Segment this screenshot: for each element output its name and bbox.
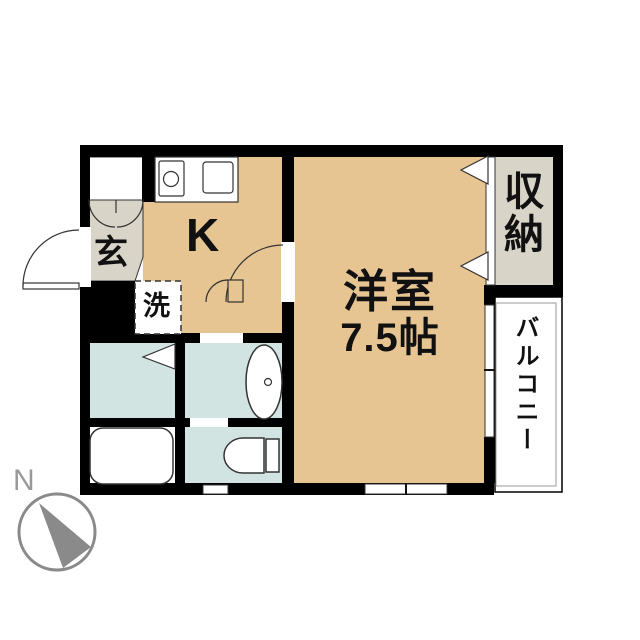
wall-bath-divider-v	[175, 343, 185, 483]
main-room-label: 洋室	[294, 269, 486, 314]
wall-kitchen-room	[282, 157, 294, 493]
wall-room-right-lower	[484, 437, 495, 483]
kitchen-sink-icon	[203, 162, 233, 193]
basin-door-leaf	[228, 280, 243, 302]
closet-label: 収納	[500, 170, 540, 256]
washbasin-drain-icon	[265, 379, 272, 386]
wall-closet-right	[553, 145, 563, 297]
toilet-doorway	[190, 418, 228, 427]
entrance-door-arc	[23, 230, 79, 286]
main-room-size: 7.5帖	[294, 318, 486, 358]
bathtub-icon	[90, 428, 173, 484]
stove-burner-icon	[164, 172, 179, 187]
entrance-door-leaf	[23, 283, 79, 289]
toilet-window	[203, 485, 228, 494]
floorplan: 玄 K 洗 洋室 7.5帖 収納 バルコニー N	[0, 0, 640, 640]
kitchen-label: K	[186, 212, 219, 258]
wall-block	[88, 281, 135, 335]
wall-closet-bottom	[484, 285, 563, 297]
wall-under-kitchen	[88, 333, 294, 343]
compass-north-label: N	[13, 466, 35, 496]
genkan-label: 玄	[94, 236, 128, 270]
entrance-cabinet	[88, 157, 143, 200]
kitchen-room-doorway	[281, 242, 295, 302]
balcony-label: バルコニー	[512, 315, 536, 455]
compass-icon	[19, 494, 95, 570]
basin-room-doorway	[200, 333, 243, 343]
laundry-label: 洗	[143, 293, 170, 320]
toilet-bowl-icon	[224, 438, 264, 473]
wall-top	[80, 145, 563, 157]
entrance-opening	[78, 227, 91, 287]
toilet-tank-icon	[266, 439, 279, 472]
